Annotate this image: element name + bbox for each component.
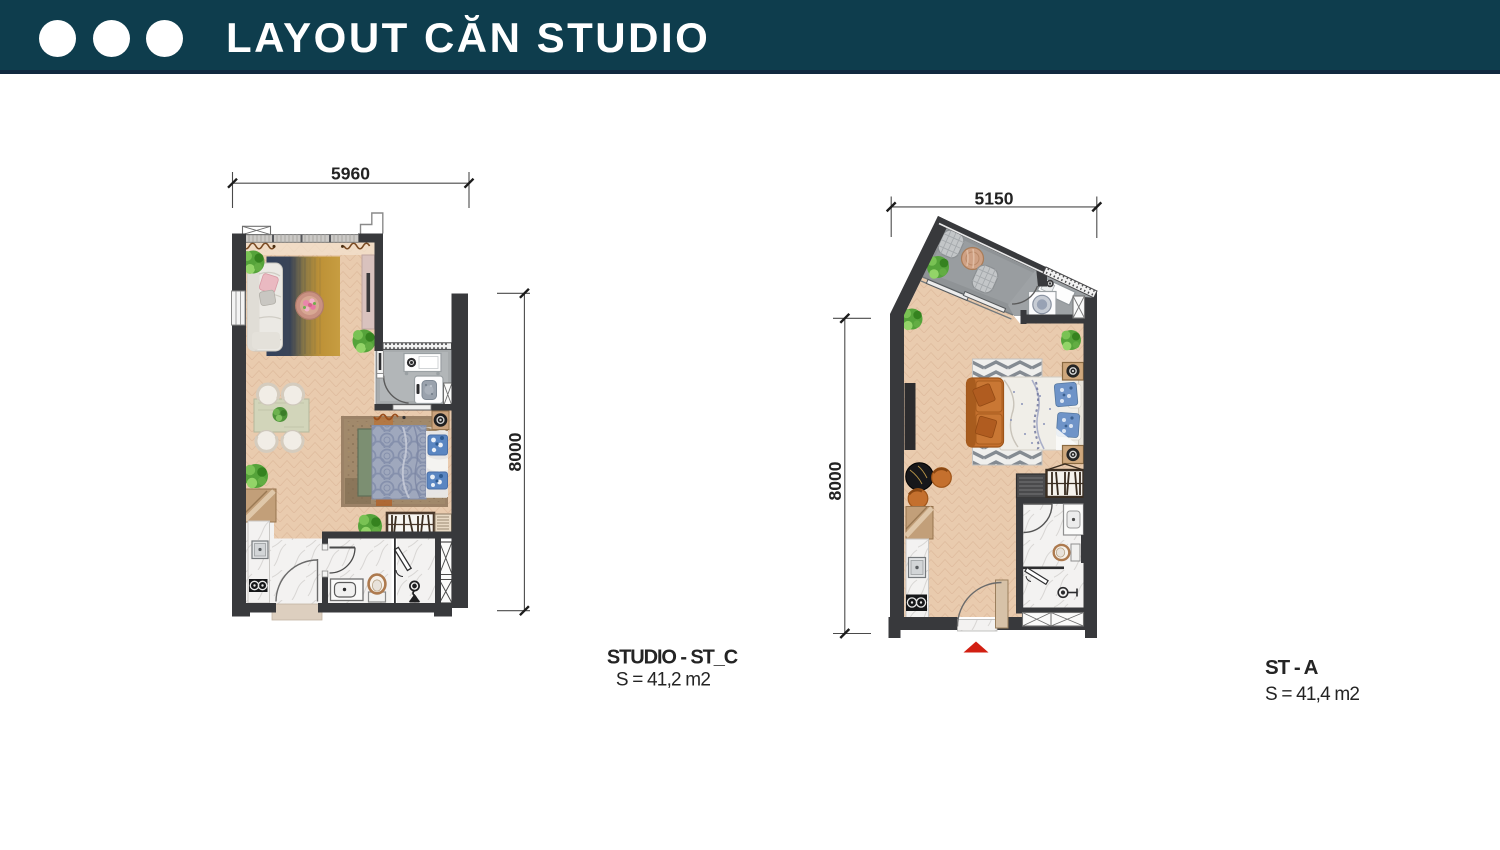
svg-text:STUDIO - ST_C: STUDIO - ST_C (607, 647, 738, 669)
svg-text:8000: 8000 (505, 432, 525, 471)
svg-text:8000: 8000 (825, 461, 845, 500)
svg-text:S = 41,2 m2: S = 41,2 m2 (616, 670, 710, 691)
svg-text:S = 41,4 m2: S = 41,4 m2 (1265, 684, 1359, 705)
svg-text:5960: 5960 (331, 164, 370, 184)
svg-text:ST - A: ST - A (1265, 656, 1319, 679)
svg-text:5150: 5150 (975, 189, 1014, 209)
